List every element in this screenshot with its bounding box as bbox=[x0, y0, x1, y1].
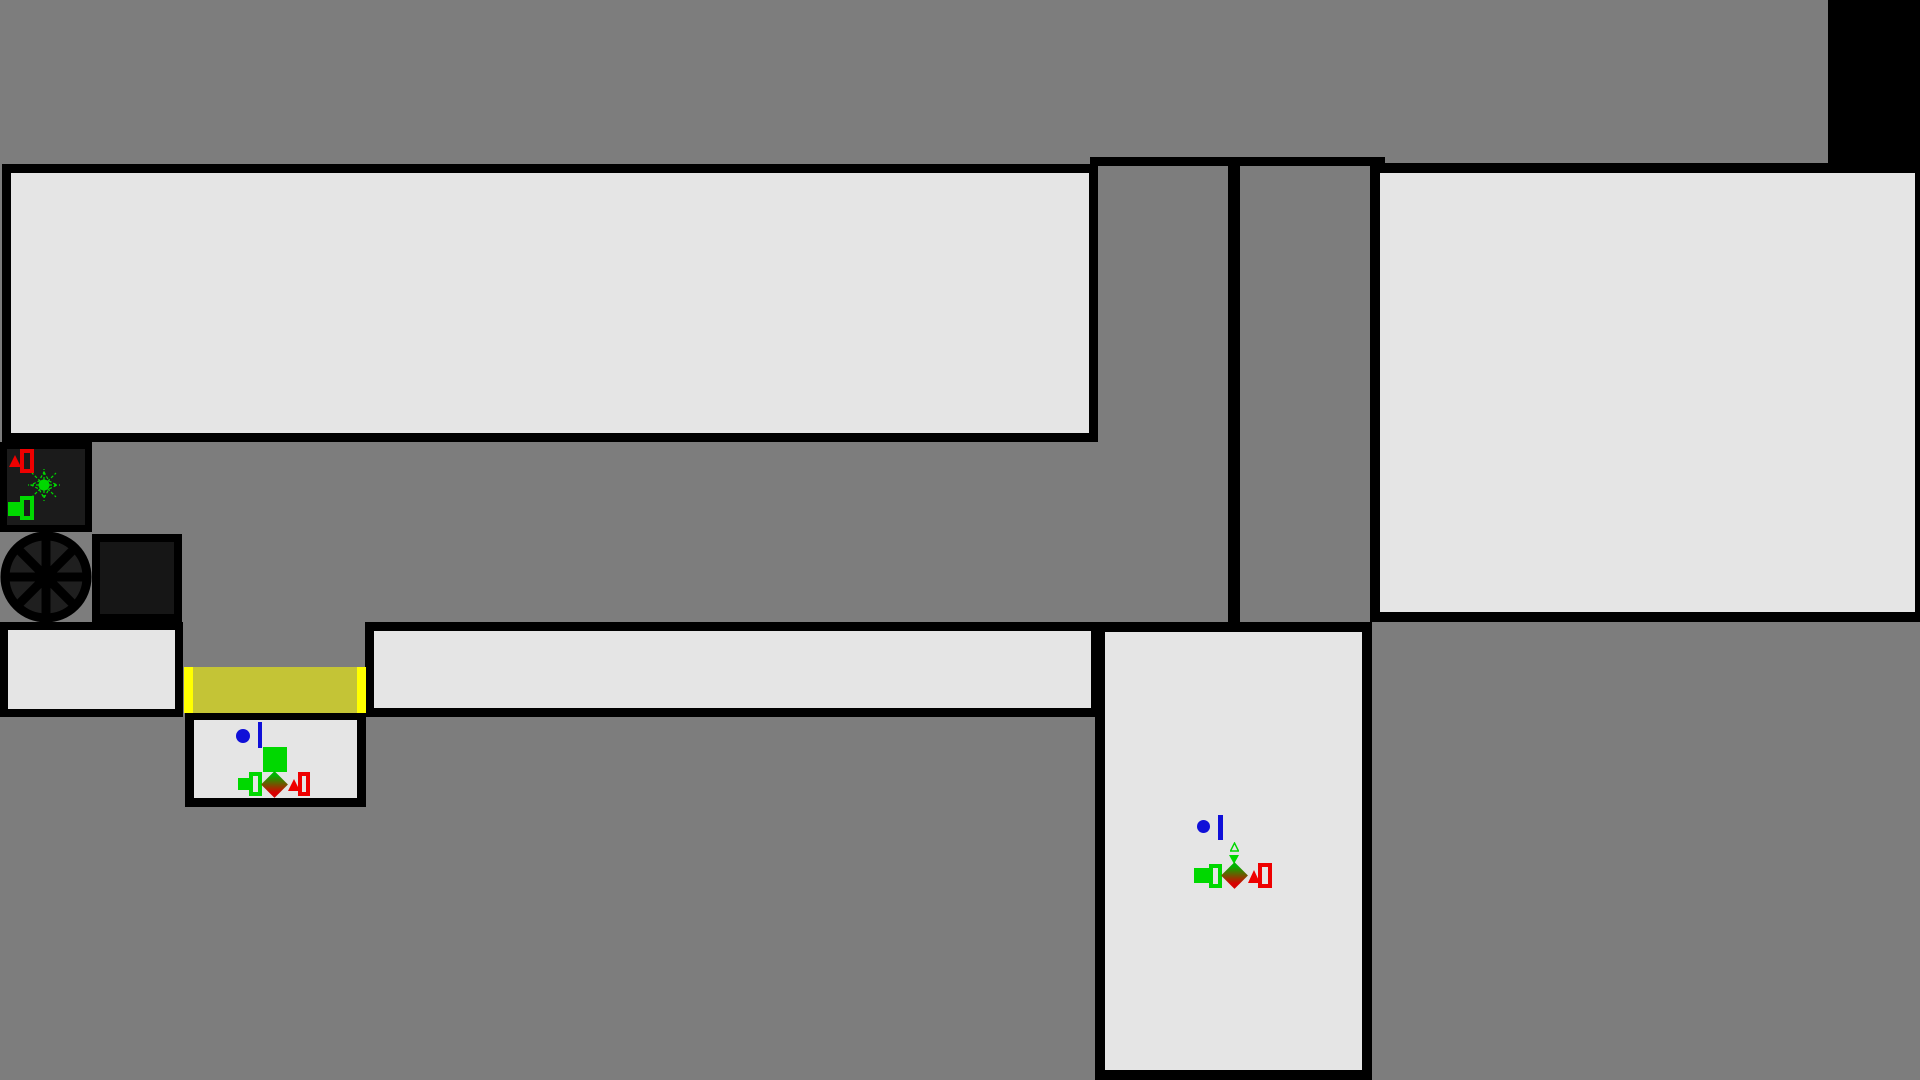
game-map bbox=[0, 0, 1920, 1080]
corridor-room bbox=[365, 622, 1100, 717]
blue-dot-icon[interactable] bbox=[236, 729, 250, 743]
blue-bar-icon[interactable] bbox=[258, 722, 262, 748]
green-triangle-outline-icon[interactable] bbox=[1230, 837, 1239, 847]
green-rect-outline-icon bbox=[20, 496, 34, 520]
red-rect-outline-icon[interactable] bbox=[298, 772, 310, 796]
dark-crate[interactable] bbox=[92, 534, 182, 622]
room-small-left bbox=[0, 622, 183, 717]
spoked-wheel-icon[interactable] bbox=[0, 531, 92, 623]
blue-dot-icon[interactable] bbox=[1197, 820, 1210, 833]
door-frame-right bbox=[357, 667, 366, 713]
green-square-icon[interactable] bbox=[1194, 868, 1210, 883]
room-top-right bbox=[1370, 163, 1920, 622]
red-rect-outline-icon[interactable] bbox=[1258, 863, 1272, 888]
door-body bbox=[193, 667, 357, 713]
black-corner-block bbox=[1828, 0, 1920, 166]
blue-bar-icon[interactable] bbox=[1218, 815, 1223, 840]
green-square-large-icon[interactable] bbox=[263, 747, 287, 772]
green-rect-outline-icon[interactable] bbox=[1209, 864, 1222, 888]
corridor-divider-wall bbox=[1228, 157, 1240, 622]
room-top-left bbox=[2, 164, 1098, 442]
yellow-door[interactable] bbox=[184, 667, 366, 713]
door-frame-left bbox=[184, 667, 193, 713]
